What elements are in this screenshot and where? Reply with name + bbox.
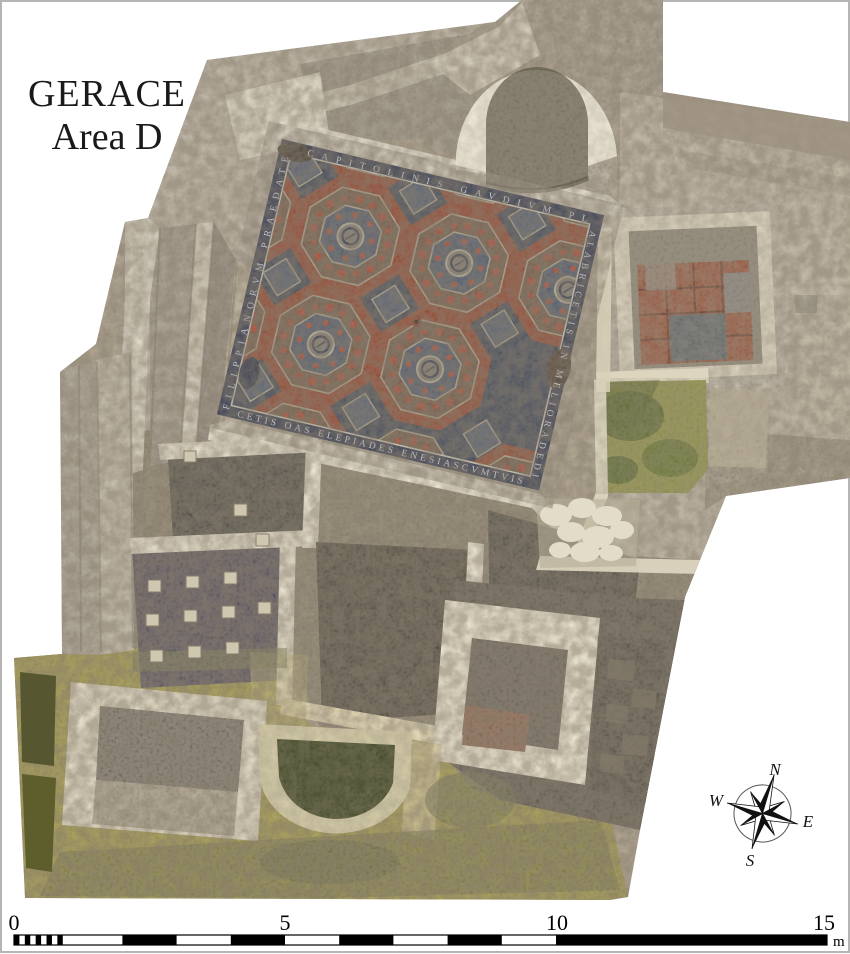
svg-text:GERACE: GERACE [28, 73, 186, 115]
svg-text:Area D: Area D [52, 116, 163, 158]
svg-text:E: E [802, 812, 814, 831]
svg-text:m: m [833, 934, 845, 950]
svg-text:10: 10 [546, 910, 568, 935]
svg-text:N: N [768, 760, 782, 779]
svg-text:15: 15 [813, 910, 835, 935]
svg-text:W: W [709, 791, 725, 810]
svg-text:0: 0 [9, 910, 20, 935]
svg-text:S: S [746, 851, 755, 870]
svg-text:5: 5 [280, 910, 291, 935]
